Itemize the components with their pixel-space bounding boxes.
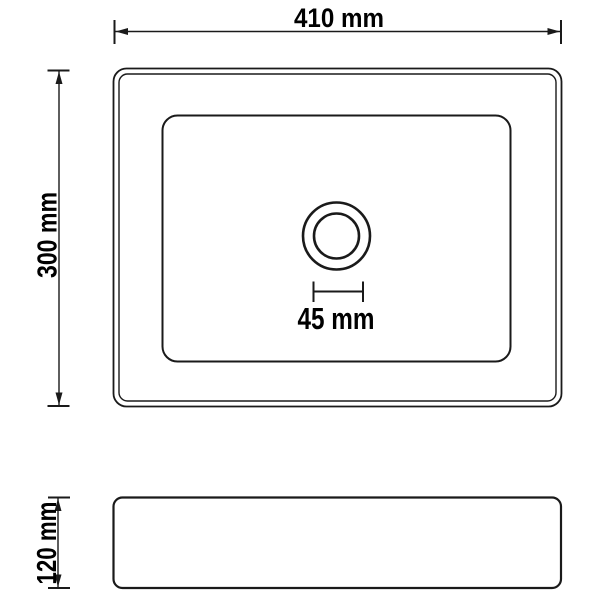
dimension-depth: 120 mm <box>31 498 70 589</box>
drain-dimension-label: 45 mm <box>298 301 375 336</box>
arrow-right-icon <box>548 28 561 35</box>
height-dimension-label: 300 mm <box>32 192 63 278</box>
side-view <box>114 498 562 589</box>
width-dimension-label: 410 mm <box>294 3 384 33</box>
arrow-down-icon <box>56 393 63 406</box>
dimension-width: 410 mm <box>115 3 562 44</box>
sink-outer-edge <box>114 69 562 407</box>
side-profile-outline <box>114 498 562 589</box>
technical-drawing-canvas: 410 mm 300 mm 45 mm <box>0 0 600 600</box>
depth-dimension-label: 120 mm <box>31 502 62 585</box>
top-view <box>114 69 562 407</box>
sink-rim-inner-edge <box>119 74 556 401</box>
arrow-left-icon <box>116 28 129 35</box>
drain-inner-circle <box>314 214 359 259</box>
dimension-height: 300 mm <box>32 71 70 407</box>
sink-dimension-drawing: 410 mm 300 mm 45 mm <box>0 0 600 600</box>
dimension-drain: 45 mm <box>298 282 375 337</box>
arrow-up-icon <box>56 72 63 85</box>
